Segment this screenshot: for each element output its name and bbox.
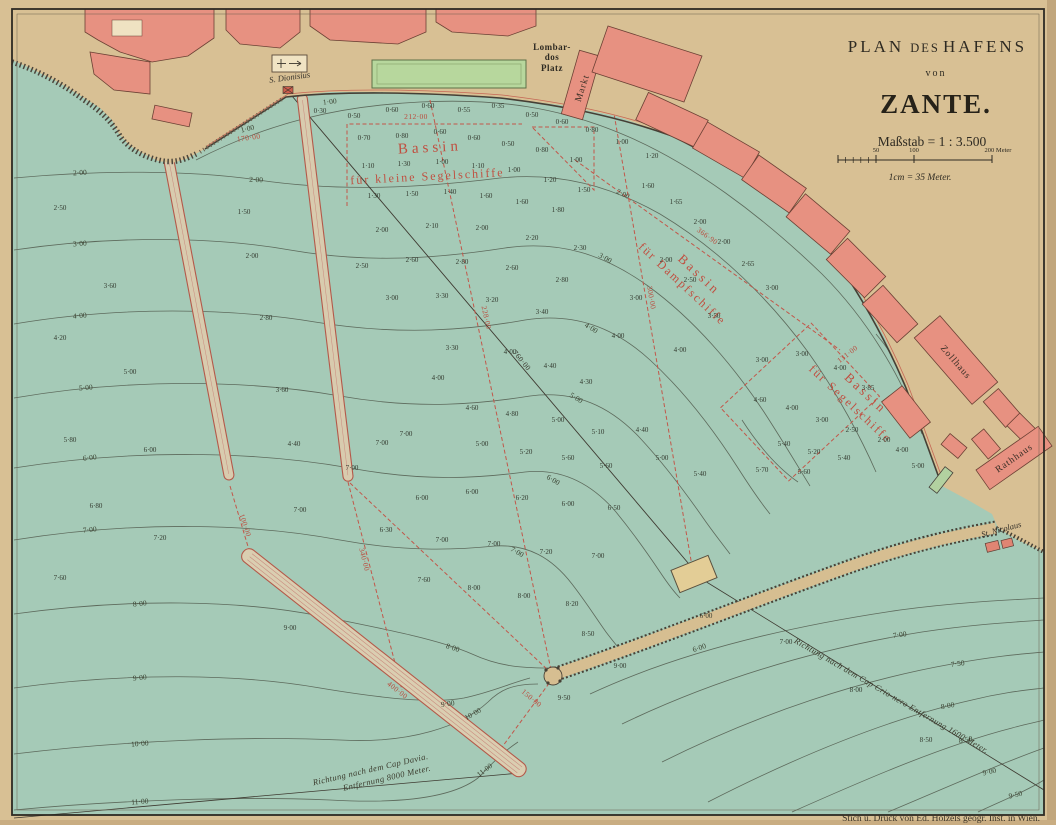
- contour-depth-label: 1·00: [322, 96, 337, 106]
- depth-sounding: 0·80: [396, 132, 409, 140]
- depth-sounding: 1·50: [238, 208, 251, 216]
- depth-sounding: 4·00: [432, 374, 445, 382]
- depth-sounding: 4·80: [506, 410, 519, 418]
- depth-sounding: 8·00: [850, 686, 863, 694]
- depth-sounding: 1·80: [552, 206, 565, 214]
- depth-sounding: 4·60: [466, 404, 479, 412]
- depth-sounding: 8·00: [468, 584, 481, 592]
- depth-sounding: 1·20: [544, 176, 557, 184]
- depth-sounding: 1·10: [362, 162, 375, 170]
- depth-sounding: 5·60: [600, 462, 613, 470]
- depth-sounding: 7·00: [294, 506, 307, 514]
- scale-tick-50: 50: [873, 147, 880, 154]
- depth-sounding: 1·60: [480, 192, 493, 200]
- depth-sounding: 4·60: [754, 396, 767, 404]
- depth-sounding: 1·40: [444, 188, 457, 196]
- depth-sounding: 5·00: [656, 454, 669, 462]
- depth-sounding: 3·30: [436, 292, 449, 300]
- lombardos-platz-label: Lombar-: [533, 42, 571, 52]
- depth-sounding: 0·80: [536, 146, 549, 154]
- depth-sounding: 6·00: [466, 488, 479, 496]
- depth-sounding: 9·00: [284, 624, 297, 632]
- depth-sounding: 8·20: [566, 600, 579, 608]
- depth-sounding: 2·00: [476, 224, 489, 232]
- depth-sounding: 2·60: [506, 264, 519, 272]
- depth-sounding: 7·00: [436, 536, 449, 544]
- map-title: HAFENS: [943, 37, 1027, 56]
- depth-sounding: 5·60: [798, 468, 811, 476]
- scale-tick-200: 200 Meter: [985, 147, 1013, 154]
- scale-label: Maßstab = 1 : 3.500: [878, 134, 987, 149]
- depth-sounding: 3·00: [796, 350, 809, 358]
- contour-depth-label: 2·00: [249, 175, 263, 184]
- depth-sounding: 0·35: [492, 102, 505, 110]
- depth-sounding: 5·00: [124, 368, 137, 376]
- depth-sounding: 1·00: [616, 138, 629, 146]
- depth-sounding: 3·50: [708, 312, 721, 320]
- depth-sounding: 9·50: [558, 694, 571, 702]
- depth-sounding: 7·00: [780, 638, 793, 646]
- depth-sounding: 1·00: [508, 166, 521, 174]
- depth-sounding: 2·60: [406, 256, 419, 264]
- contour-depth-label: 5·00: [79, 382, 94, 392]
- depth-sounding: 0·80: [586, 126, 599, 134]
- depth-sounding: 2·50: [356, 262, 369, 270]
- depth-sounding: 3·00: [630, 294, 643, 302]
- depth-sounding: 8·50: [920, 736, 933, 744]
- depth-sounding: 0·60: [556, 118, 569, 126]
- depth-sounding: 2·80: [456, 258, 469, 266]
- map-title: DES: [910, 41, 940, 55]
- depth-sounding: 3·85: [862, 384, 875, 392]
- depth-sounding: 1·60: [642, 182, 655, 190]
- depth-sounding: 3·00: [816, 416, 829, 424]
- depth-sounding: 0·60: [468, 134, 481, 142]
- depth-sounding: 0·30: [314, 107, 327, 115]
- depth-sounding: 0·60: [386, 106, 399, 114]
- depth-sounding: 7·00: [376, 439, 389, 447]
- contour-depth-label: 7·00: [82, 524, 97, 534]
- depth-sounding: 5·60: [562, 454, 575, 462]
- scale-tick-100: 100: [909, 147, 919, 154]
- depth-sounding: 3·60: [276, 386, 289, 394]
- depth-sounding: 1·00: [570, 156, 583, 164]
- depth-sounding: 3·30: [446, 344, 459, 352]
- depth-sounding: 3·40: [536, 308, 549, 316]
- dimension-label: 212·00: [404, 112, 428, 121]
- depth-sounding: 1·20: [646, 152, 659, 160]
- depth-sounding: 9·00: [614, 662, 627, 670]
- depth-sounding: 4·40: [636, 426, 649, 434]
- map-title-zante: ZANTE.: [880, 89, 992, 119]
- depth-sounding: 7·60: [418, 576, 431, 584]
- attribution: Stich u. Druck von Ed. Hölzels geogr. In…: [842, 814, 1040, 824]
- depth-sounding: 5·40: [694, 470, 707, 478]
- depth-sounding: 6·00: [700, 612, 713, 620]
- depth-sounding: 4·40: [544, 362, 557, 370]
- depth-sounding: 3·00: [766, 284, 779, 292]
- depth-sounding: 1·00: [436, 158, 449, 166]
- depth-sounding: 7·00: [592, 552, 605, 560]
- depth-sounding: 4·00: [786, 404, 799, 412]
- depth-sounding: 6·30: [380, 526, 393, 534]
- contour-depth-label: 9·00: [132, 672, 147, 682]
- depth-sounding: 4·20: [54, 334, 67, 342]
- depth-sounding: 6·00: [562, 500, 575, 508]
- depth-sounding: 0·50: [502, 140, 515, 148]
- depth-sounding: 3·60: [104, 282, 117, 290]
- depth-sounding: 7·20: [154, 534, 167, 542]
- depth-sounding: 7·60: [54, 574, 67, 582]
- depth-sounding: 0·60: [434, 128, 447, 136]
- depth-sounding: 0·50: [526, 111, 539, 119]
- depth-sounding: 2·20: [526, 234, 539, 242]
- contour-depth-label: 6·00: [82, 452, 97, 462]
- depth-sounding: 6·00: [416, 494, 429, 502]
- depth-sounding: 7·00: [400, 430, 413, 438]
- contour-depth-label: 2·00: [73, 168, 87, 178]
- depth-sounding: 2·50: [54, 204, 67, 212]
- depth-sounding: 6·00: [144, 446, 157, 454]
- scale-note: 1cm = 35 Meter.: [889, 173, 952, 183]
- depth-sounding: 2·65: [742, 260, 755, 268]
- depth-sounding: 2·00: [878, 436, 891, 444]
- depth-sounding: 5·00: [912, 462, 925, 470]
- depth-sounding: 1·30: [398, 160, 411, 168]
- depth-sounding: 5·10: [592, 428, 605, 436]
- depth-sounding: 2·30: [574, 244, 587, 252]
- map-title-von: von: [926, 68, 947, 79]
- depth-sounding: 7·00: [488, 540, 501, 548]
- contour-depth-label: 11·00: [131, 796, 149, 806]
- lombardos-platz-label: dos: [545, 52, 560, 62]
- harbor-map-sheet: Lombar- dos Platz Markt S. Dionisius Zol…: [0, 0, 1056, 825]
- depth-sounding: 0·60: [422, 102, 435, 110]
- contour-depth-label: 4·00: [73, 310, 88, 320]
- depth-sounding: 8·00: [518, 592, 531, 600]
- depth-sounding: 5·70: [756, 466, 769, 474]
- depth-sounding: 2·80: [260, 314, 273, 322]
- depth-sounding: 2·00: [660, 256, 673, 264]
- depth-sounding: 4·00: [896, 446, 909, 454]
- depth-sounding: 5·00: [552, 416, 565, 424]
- depth-sounding: 6·50: [608, 504, 621, 512]
- depth-sounding: 0·50: [348, 112, 361, 120]
- depth-sounding: 1·65: [670, 198, 683, 206]
- map-canvas: Lombar- dos Platz Markt S. Dionisius Zol…: [0, 0, 1056, 825]
- basin1-label: Bassin: [398, 138, 463, 157]
- depth-sounding: 6·20: [516, 494, 529, 502]
- depth-sounding: 1·60: [516, 198, 529, 206]
- depth-sounding: 3·00: [756, 356, 769, 364]
- depth-sounding: 0·55: [458, 106, 471, 114]
- depth-sounding: 5·40: [838, 454, 851, 462]
- depth-sounding: 4·40: [288, 440, 301, 448]
- depth-sounding: 1·10: [472, 162, 485, 170]
- depth-sounding: 5·20: [520, 448, 533, 456]
- depth-sounding: 2·50: [684, 276, 697, 284]
- depth-sounding: 1·50: [406, 190, 419, 198]
- depth-sounding: 4·00: [674, 346, 687, 354]
- park: [372, 60, 526, 88]
- paper-edge-right: [1047, 0, 1056, 825]
- depth-sounding: 2·00: [246, 252, 259, 260]
- contour-depth-label: 8·00: [132, 598, 147, 608]
- contour-depth-label: 3·00: [73, 239, 88, 249]
- depth-sounding: 1·30: [368, 192, 381, 200]
- depth-sounding: 4·30: [580, 378, 593, 386]
- contour-depth-label: 10·00: [131, 738, 149, 749]
- depth-sounding: 0·70: [358, 134, 371, 142]
- depth-sounding: 5·20: [808, 448, 821, 456]
- depth-sounding: 7·00: [346, 464, 359, 472]
- beacon-icon: [283, 87, 293, 94]
- depth-sounding: 2·50: [846, 426, 859, 434]
- depth-sounding: 6·80: [90, 502, 103, 510]
- depth-sounding: 2·80: [556, 276, 569, 284]
- depth-sounding: 1·50: [578, 186, 591, 194]
- depth-sounding: 2·10: [426, 222, 439, 230]
- depth-sounding: 4·00: [612, 332, 625, 340]
- depth-sounding: 7·20: [540, 548, 553, 556]
- depth-sounding: 3·20: [486, 296, 499, 304]
- depth-sounding: 5·40: [778, 440, 791, 448]
- depth-sounding: 5·80: [64, 436, 77, 444]
- lombardos-platz-label: Platz: [541, 63, 563, 73]
- depth-sounding: 5·00: [476, 440, 489, 448]
- depth-sounding: 2·00: [376, 226, 389, 234]
- depth-sounding: 8·50: [582, 630, 595, 638]
- map-title: PLAN: [848, 37, 904, 56]
- depth-sounding: 3·00: [386, 294, 399, 302]
